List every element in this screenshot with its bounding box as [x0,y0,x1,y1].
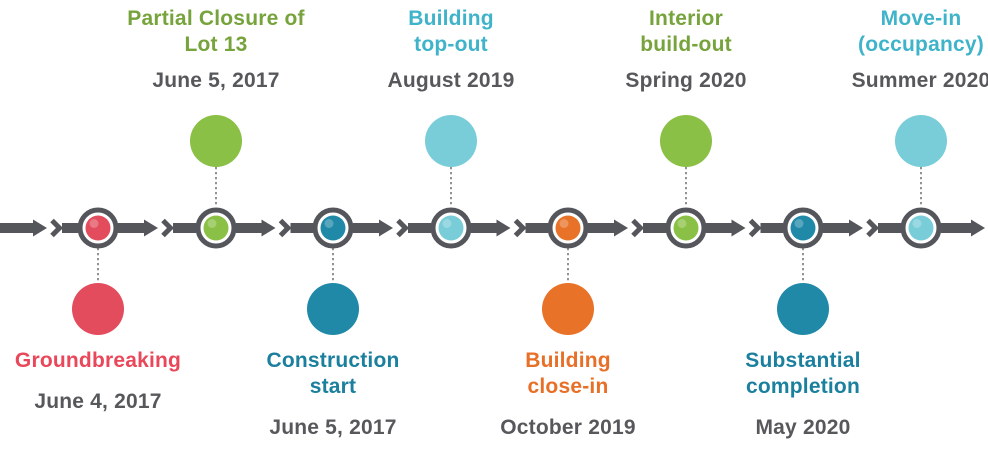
event-marker-circle [72,283,124,335]
timeline-bar [878,223,901,233]
chevron-icon [52,221,60,236]
chevron-icon [398,221,406,236]
arrowhead-icon [732,220,746,237]
node-highlight [443,219,452,228]
event-title: Substantial completion [697,348,909,400]
timeline-node-dot [321,216,346,241]
event-title: Building top-out [345,6,557,58]
timeline-node-dot [204,216,229,241]
arrowhead-icon [971,220,985,237]
chevron-icon [751,221,759,236]
timeline-bar [588,223,614,233]
event-title: Construction start [227,348,439,400]
timeline-bar [0,223,33,233]
timeline-bar [706,223,732,233]
node-highlight [208,219,217,228]
node-highlight [795,219,804,228]
chevron-icon [281,221,289,236]
arrowhead-icon [144,220,158,237]
event-marker-circle [660,115,712,167]
timeline-node-dot [86,216,111,241]
event-marker-circle [190,115,242,167]
timeline-node-dot [674,216,699,241]
event-groundbreaking: Groundbreaking June 4, 2017 [0,348,204,415]
timeline-node-dot [556,216,581,241]
timeline-bar [408,223,431,233]
timeline-bar [118,223,144,233]
node-highlight [913,219,922,228]
node-highlight [90,219,99,228]
event-construction-start: Construction start June 5, 2017 [227,348,439,441]
event-date: Spring 2020 [580,68,792,94]
timeline-bar [471,223,497,233]
event-date: October 2019 [462,415,674,441]
timeline-bar [353,223,379,233]
event-title: Move-in (occupancy) [815,6,988,58]
event-marker-circle [425,115,477,167]
event-marker-circle [307,283,359,335]
arrowhead-icon [262,220,276,237]
event-substantial-completion: Substantial completion May 2020 [697,348,909,441]
arrowhead-icon [849,220,863,237]
event-date: Summer 2020 [815,68,988,94]
event-marker-circle [542,283,594,335]
event-marker-circle [777,283,829,335]
timeline-bar [526,223,549,233]
event-date: June 5, 2017 [110,68,322,94]
arrowhead-icon [614,220,628,237]
event-marker-circle [895,115,947,167]
timeline-bar [643,223,666,233]
event-move-in: Move-in (occupancy) Summer 2020 [815,6,988,94]
timeline-node-dot [909,216,934,241]
event-title: Partial Closure of Lot 13 [110,6,322,58]
chevron-icon [633,221,641,236]
timeline-bar [291,223,314,233]
timeline-node-dot [439,216,464,241]
event-date: June 4, 2017 [0,389,204,415]
arrowhead-icon [379,220,393,237]
timeline-bar [823,223,849,233]
event-date: May 2020 [697,415,909,441]
timeline-bar [941,223,971,233]
timeline-bar [236,223,262,233]
arrowhead-icon [497,220,511,237]
event-interior-build-out: Interior build-out Spring 2020 [580,6,792,94]
chevron-icon [868,221,876,236]
event-date: August 2019 [345,68,557,94]
arrowhead-icon [33,220,47,237]
event-building-top-out: Building top-out August 2019 [345,6,557,94]
event-title: Building close-in [462,348,674,400]
timeline-bar [62,223,78,233]
event-building-close-in: Building close-in October 2019 [462,348,674,441]
timeline-bar [761,223,784,233]
event-title: Interior build-out [580,6,792,58]
node-highlight [325,219,334,228]
chevron-icon [516,221,524,236]
timeline-bar [173,223,196,233]
chevron-icon [163,221,171,236]
node-highlight [678,219,687,228]
construction-timeline: Groundbreaking June 4, 2017 Partial Clos… [0,0,988,449]
node-highlight [560,219,569,228]
event-title: Groundbreaking [0,348,204,374]
event-partial-closure-lot-13: Partial Closure of Lot 13 June 5, 2017 [110,6,322,94]
event-date: June 5, 2017 [227,415,439,441]
timeline-node-dot [791,216,816,241]
